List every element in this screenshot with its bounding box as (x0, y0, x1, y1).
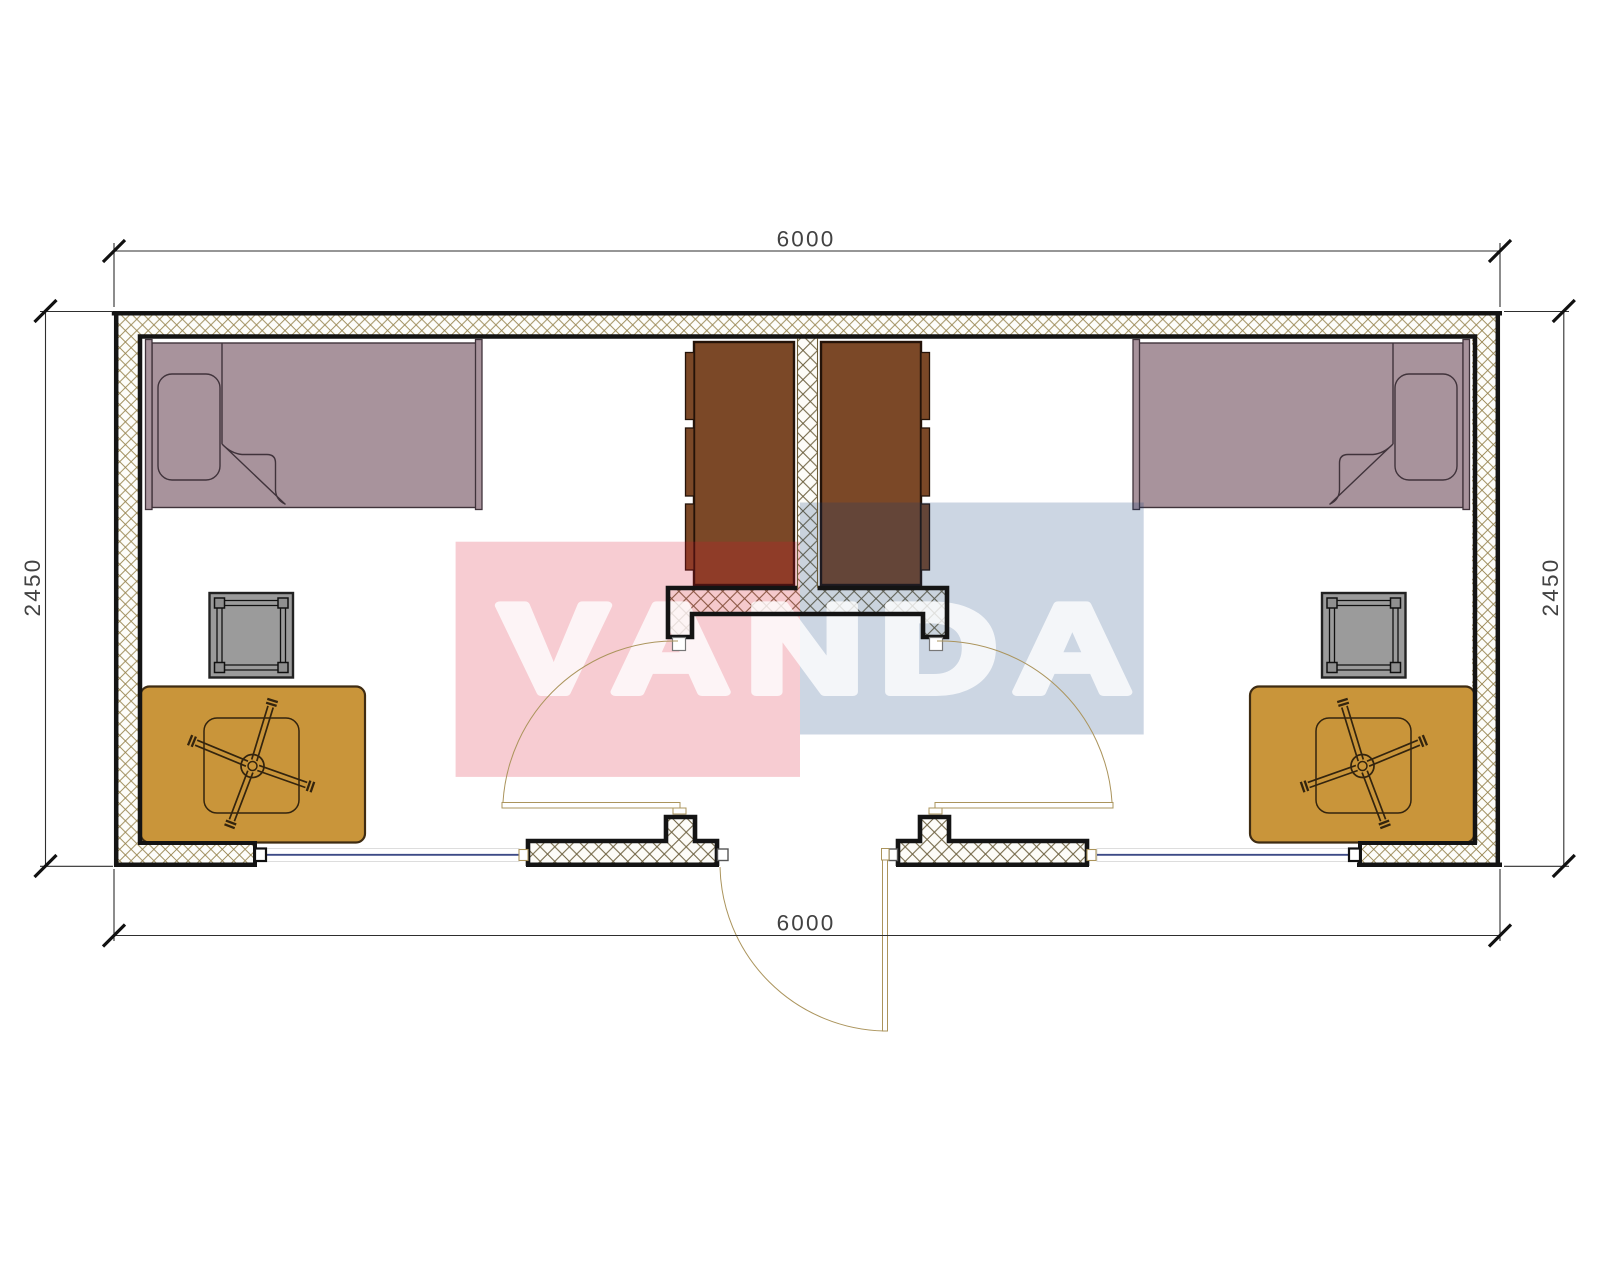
svg-text:VANDA: VANDA (499, 578, 1147, 719)
svg-text:6000: 6000 (777, 227, 836, 252)
svg-text:2450: 2450 (1538, 558, 1563, 617)
svg-text:6000: 6000 (777, 911, 836, 936)
svg-text:2450: 2450 (20, 558, 45, 617)
